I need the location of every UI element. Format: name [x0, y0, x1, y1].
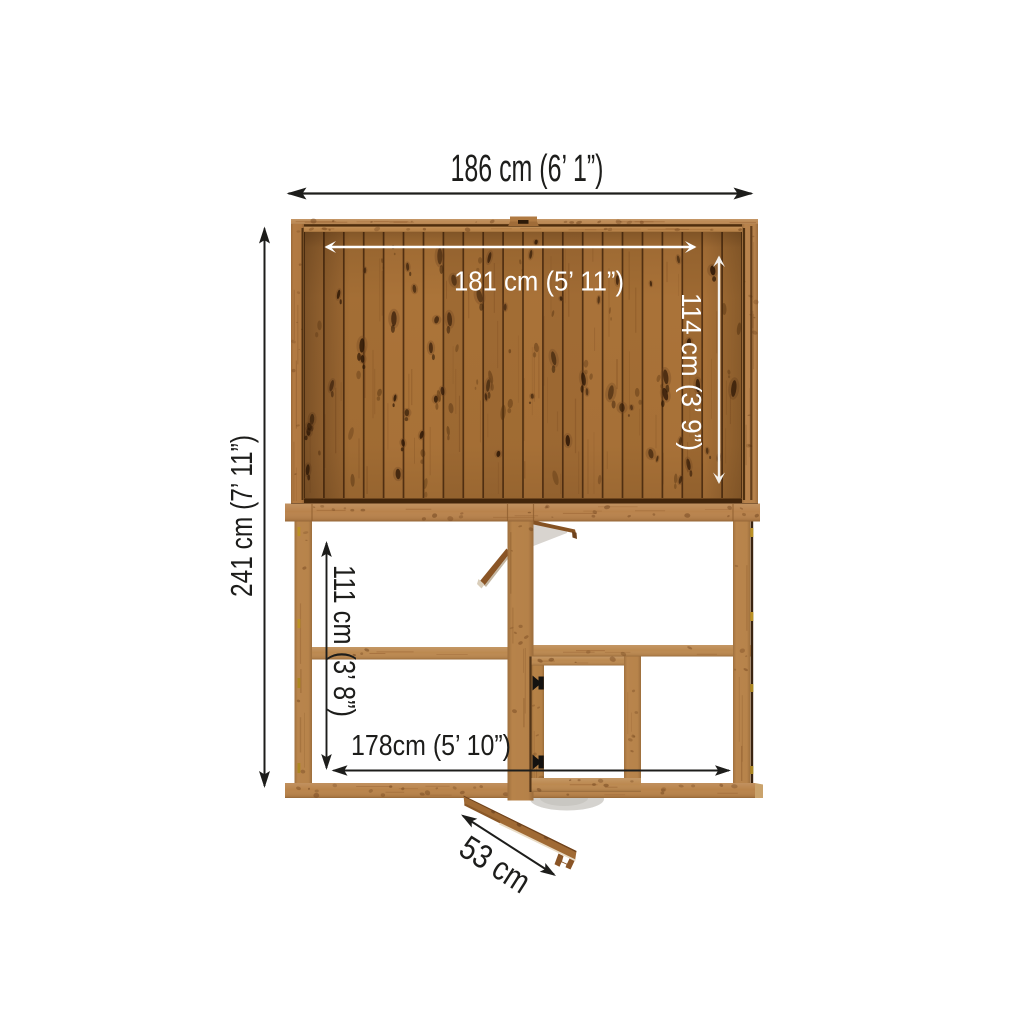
svg-text:111 cm (3’ 8”): 111 cm (3’ 8”) — [327, 565, 361, 717]
svg-text:186 cm (6’ 1”): 186 cm (6’ 1”) — [451, 148, 604, 190]
svg-text:181 cm (5’ 11”): 181 cm (5’ 11”) — [454, 266, 624, 297]
svg-text:178cm (5’ 10”): 178cm (5’ 10”) — [351, 730, 511, 762]
svg-text:241 cm (7’ 11”): 241 cm (7’ 11”) — [225, 435, 259, 597]
svg-text:114 cm (3’ 9”): 114 cm (3’ 9”) — [676, 293, 707, 451]
